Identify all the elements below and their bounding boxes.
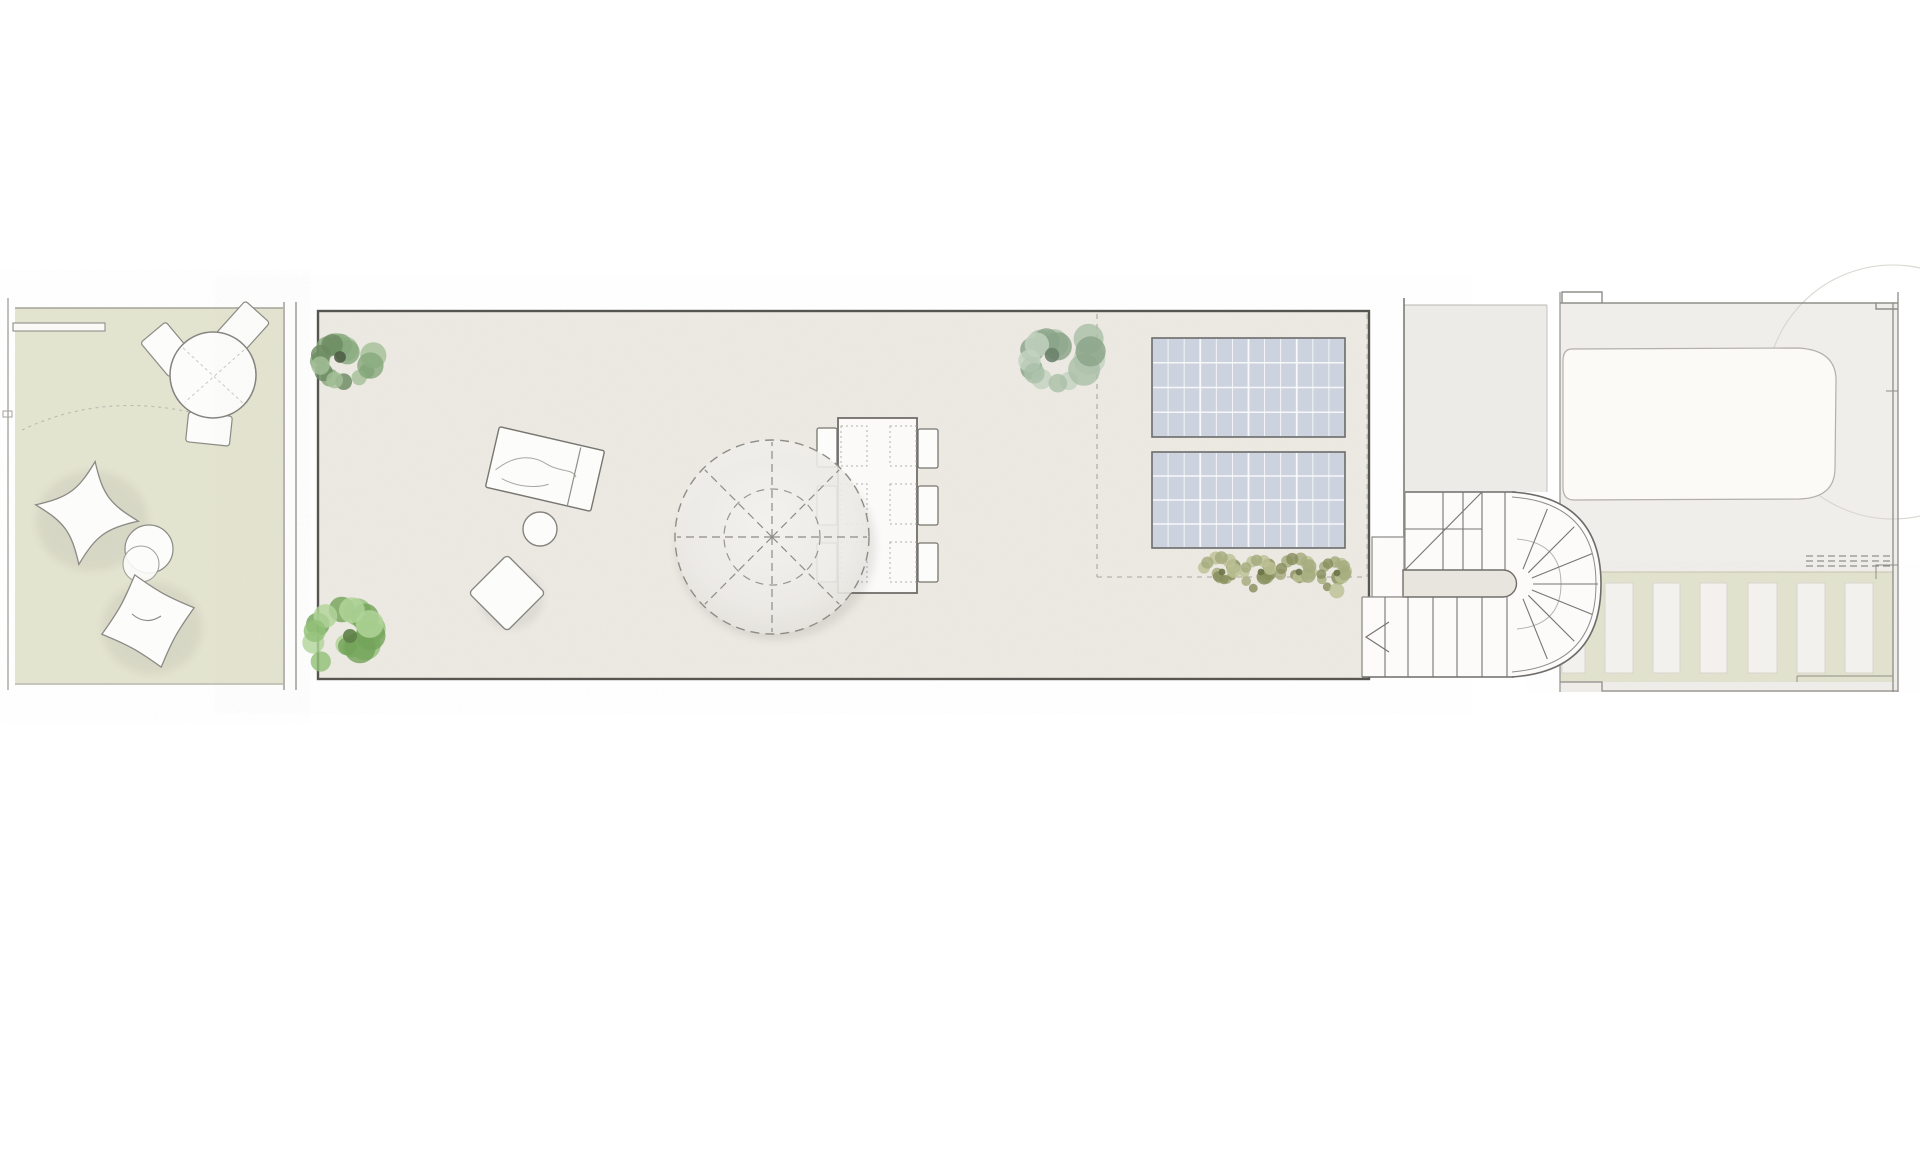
walkway-bar-4 xyxy=(1748,583,1777,673)
planting-row-bush-3-core xyxy=(1296,569,1303,576)
planting-row-bush-1-leaf xyxy=(1227,563,1242,578)
walkway-bar-1 xyxy=(1605,583,1633,673)
planting-row-bush-1-core xyxy=(1219,569,1226,576)
planting-row-bush-2-leaf xyxy=(1241,576,1251,586)
plant-sage-top-leaf xyxy=(1024,363,1045,384)
plant-sage-top-core xyxy=(1045,348,1059,362)
planting-row-bush-2-leaf xyxy=(1264,562,1277,575)
floor-plan xyxy=(0,0,1920,1166)
plan-root xyxy=(3,265,1920,692)
plant-sage-top-leaf xyxy=(1076,336,1106,366)
stairwell-area xyxy=(1404,305,1547,492)
plant-ivy-top-core xyxy=(334,351,346,363)
plant-bright-bottom-leaf xyxy=(311,651,331,671)
planting-row-bush-2-leaf xyxy=(1249,584,1258,593)
walkway-bar-5 xyxy=(1797,583,1825,673)
side-table xyxy=(523,512,557,546)
plant-ivy-top-leaf xyxy=(326,372,343,389)
bistro-table xyxy=(170,332,256,418)
planting-row-bush-4-leaf xyxy=(1323,558,1334,569)
plant-ivy-top-leaf xyxy=(357,352,383,378)
planting-row-bush-4-leaf xyxy=(1329,583,1344,598)
planting-row-bush-3-leaf xyxy=(1301,568,1316,583)
planting-row-bush-1-leaf xyxy=(1201,557,1213,569)
floor-plan-page xyxy=(0,0,1920,1166)
pouf-small xyxy=(123,546,159,582)
planter-bar xyxy=(13,323,105,331)
planting-row-bush-2-core xyxy=(1258,569,1265,576)
walkway-bar-2 xyxy=(1653,583,1680,673)
planting-row-bush-2-leaf xyxy=(1241,562,1252,573)
plant-bright-bottom-core xyxy=(343,629,357,643)
dining-chair-r1 xyxy=(918,429,938,468)
planting-row-bush-1-leaf xyxy=(1215,551,1228,564)
stair-wall-block xyxy=(1372,537,1404,597)
dining-chair-r2 xyxy=(918,486,938,525)
rounded-canopy xyxy=(1563,348,1836,500)
planting-row-bush-4-core xyxy=(1334,570,1341,577)
plant-sage-top-leaf xyxy=(1049,374,1068,393)
planting-row-bush-3-leaf xyxy=(1276,563,1287,574)
planting-row-bush-2-leaf xyxy=(1251,555,1262,566)
stair-landing-slot xyxy=(1403,570,1517,597)
plant-bright-bottom-leaf xyxy=(304,620,326,642)
walkway-bar-6 xyxy=(1845,583,1873,673)
plant-bright-bottom-leaf xyxy=(356,610,384,638)
plant-ivy-top-leaf xyxy=(311,356,329,374)
dining-chair-r3 xyxy=(918,543,938,582)
planting-row-bush-3-leaf xyxy=(1286,553,1298,565)
planting-row-bush-4-leaf xyxy=(1316,569,1326,579)
walkway-bar-3 xyxy=(1700,583,1727,673)
